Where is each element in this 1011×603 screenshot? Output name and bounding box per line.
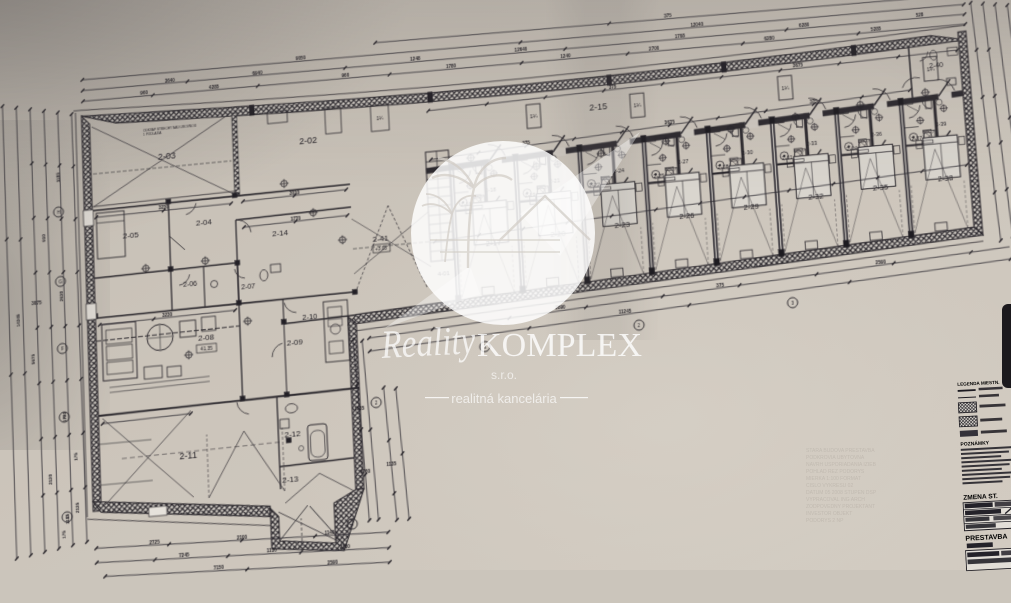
svg-text:2-14: 2-14 xyxy=(272,228,289,239)
svg-text:3075: 3075 xyxy=(31,300,42,306)
svg-text:1130: 1130 xyxy=(267,548,278,554)
svg-text:1708: 1708 xyxy=(675,33,686,39)
svg-text:6280: 6280 xyxy=(764,35,775,41)
svg-text:1135: 1135 xyxy=(354,405,365,411)
svg-text:2: 2 xyxy=(375,400,378,406)
svg-text:2120: 2120 xyxy=(48,474,53,485)
svg-text:528: 528 xyxy=(916,12,925,18)
svg-text:375: 375 xyxy=(716,282,725,288)
svg-text:9050: 9050 xyxy=(295,55,306,61)
svg-text:4-01: 4-01 xyxy=(438,271,450,278)
svg-text:1¼: 1¼ xyxy=(633,103,642,110)
svg-text:14245: 14245 xyxy=(15,313,20,327)
svg-text:175: 175 xyxy=(73,452,78,461)
svg-text:2725: 2725 xyxy=(149,539,160,545)
svg-text:3230: 3230 xyxy=(162,312,173,318)
svg-text:2590: 2590 xyxy=(875,259,886,265)
svg-text:375: 375 xyxy=(809,98,818,104)
svg-text:375: 375 xyxy=(664,13,672,19)
svg-text:1770: 1770 xyxy=(290,215,301,221)
svg-text:2-16: 2-16 xyxy=(461,201,472,208)
svg-text:1140: 1140 xyxy=(324,529,335,535)
svg-text:1¼: 1¼ xyxy=(376,115,384,122)
svg-text:2630: 2630 xyxy=(59,291,64,302)
svg-text:1 PODLAZIA: 1 PODLAZIA xyxy=(143,131,162,137)
svg-text:D: D xyxy=(65,515,68,521)
svg-text:2-17: 2-17 xyxy=(486,238,502,249)
svg-text:1: 1 xyxy=(484,344,487,349)
svg-text:3675: 3675 xyxy=(664,119,675,125)
svg-text:2125: 2125 xyxy=(75,502,80,513)
svg-text:LEGENDA MIESTN.: LEGENDA MIESTN. xyxy=(957,380,999,387)
svg-text:2-26: 2-26 xyxy=(679,210,695,221)
svg-text:2-38: 2-38 xyxy=(937,173,953,184)
svg-text:POZNÁMKY: POZNÁMKY xyxy=(960,439,990,448)
svg-text:2890: 2890 xyxy=(555,305,566,311)
svg-text:2-20: 2-20 xyxy=(550,229,566,240)
svg-text:1185: 1185 xyxy=(55,172,60,183)
svg-text:2-06: 2-06 xyxy=(183,280,197,289)
svg-text:1248: 1248 xyxy=(410,56,421,62)
svg-text:2-07: 2-07 xyxy=(241,283,255,292)
svg-text:5285: 5285 xyxy=(871,26,882,32)
svg-text:2-09: 2-09 xyxy=(287,337,303,348)
svg-text:4285: 4285 xyxy=(209,84,220,90)
svg-text:2380: 2380 xyxy=(340,544,351,550)
svg-text:375: 375 xyxy=(522,140,530,146)
svg-text:PRESTAVBA: PRESTAVBA xyxy=(965,534,1007,543)
svg-text:7150: 7150 xyxy=(213,565,224,571)
svg-text:2-34: 2-34 xyxy=(846,146,857,153)
svg-text:2-29: 2-29 xyxy=(743,201,759,212)
svg-text:5675: 5675 xyxy=(30,353,35,364)
svg-text:2-23: 2-23 xyxy=(614,219,630,230)
svg-text:2-27: 2-27 xyxy=(678,159,689,166)
svg-text:G: G xyxy=(59,279,63,285)
svg-text:2-31: 2-31 xyxy=(782,155,793,162)
svg-text:3230: 3230 xyxy=(158,205,169,211)
svg-text:175: 175 xyxy=(61,530,66,539)
svg-text:3: 3 xyxy=(791,300,795,305)
svg-text:3675: 3675 xyxy=(792,63,803,69)
svg-text:2-08: 2-08 xyxy=(198,332,214,343)
svg-text:6940: 6940 xyxy=(252,70,263,76)
svg-text:2: 2 xyxy=(637,322,640,327)
svg-text:2-28: 2-28 xyxy=(718,164,729,171)
svg-text:2-30: 2-30 xyxy=(742,150,753,157)
svg-text:2590: 2590 xyxy=(327,559,338,565)
svg-text:7245: 7245 xyxy=(179,552,190,558)
svg-text:2-39: 2-39 xyxy=(935,122,946,129)
svg-text:2700: 2700 xyxy=(649,46,660,52)
svg-text:2-32: 2-32 xyxy=(808,192,824,203)
svg-text:3010: 3010 xyxy=(289,190,300,196)
svg-text:1135: 1135 xyxy=(386,461,397,467)
svg-text:F: F xyxy=(61,346,64,351)
svg-text:2-35: 2-35 xyxy=(873,182,889,193)
svg-text:1240: 1240 xyxy=(560,53,571,59)
svg-text:H: H xyxy=(57,210,60,215)
svg-text:2-36: 2-36 xyxy=(871,131,882,138)
svg-text:1780: 1780 xyxy=(446,63,457,69)
svg-text:2-18: 2-18 xyxy=(485,187,496,194)
svg-text:E: E xyxy=(63,415,66,420)
svg-text:2-24: 2-24 xyxy=(613,169,624,176)
svg-text:960: 960 xyxy=(140,90,148,96)
svg-text:2-37: 2-37 xyxy=(911,136,922,143)
svg-text:2-25: 2-25 xyxy=(653,174,664,181)
svg-text:1¼: 1¼ xyxy=(781,85,790,92)
svg-text:1¼: 1¼ xyxy=(530,114,539,121)
svg-text:960: 960 xyxy=(342,73,350,79)
svg-text:910: 910 xyxy=(41,234,46,243)
svg-text:ZMENA ST.: ZMENA ST. xyxy=(963,493,998,502)
svg-text:2100: 2100 xyxy=(237,534,248,540)
svg-text:2-04: 2-04 xyxy=(196,217,213,228)
svg-text:2-19: 2-19 xyxy=(525,192,536,199)
svg-text:3640: 3640 xyxy=(165,77,176,83)
svg-text:2-40: 2-40 xyxy=(929,62,944,70)
svg-text:6280: 6280 xyxy=(799,22,810,28)
svg-text:2-33: 2-33 xyxy=(806,141,817,148)
svg-text:2-41: 2-41 xyxy=(372,233,388,244)
svg-text:2-13: 2-13 xyxy=(282,474,299,485)
svg-text:375: 375 xyxy=(609,84,617,90)
svg-text:41,35: 41,35 xyxy=(200,346,213,352)
svg-text:1760: 1760 xyxy=(360,469,371,475)
svg-text:2-02: 2-02 xyxy=(299,135,317,147)
svg-text:2-22: 2-22 xyxy=(589,183,600,190)
svg-text:2-15: 2-15 xyxy=(589,101,608,113)
svg-text:2-21: 2-21 xyxy=(549,178,560,185)
